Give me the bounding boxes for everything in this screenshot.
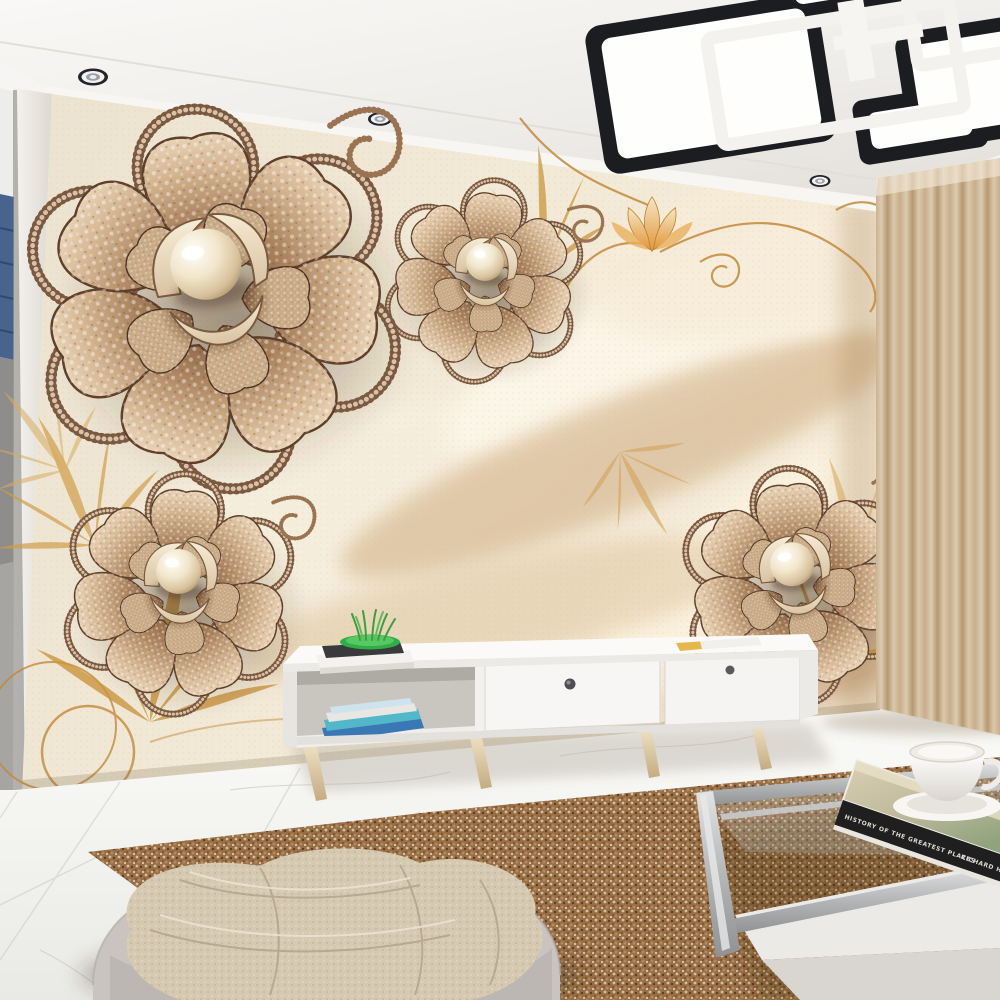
stand-left-panel [283, 671, 297, 748]
drawer-1-knob [565, 679, 576, 690]
drawer-2 [665, 654, 800, 725]
far-wall-lower [0, 562, 15, 792]
curtain-shade [876, 158, 1000, 735]
interior-scene: HISTORY OF THE GREATEST PLACES RICHARD H… [0, 0, 1000, 1000]
far-wall-mid [0, 357, 14, 565]
far-wall-upper [0, 88, 14, 197]
drawer-1 [485, 659, 660, 731]
curtain [876, 158, 1000, 735]
stand-divider [475, 666, 485, 737]
blanket-knit-texture [127, 848, 543, 1000]
drawer-1-knob-highlight [567, 681, 571, 685]
spotlight-1 [78, 69, 108, 86]
cup-interior [918, 745, 976, 759]
living-room-render: HISTORY OF THE GREATEST PLACES RICHARD H… [0, 0, 1000, 1000]
stand-right-panel [800, 651, 818, 720]
knit-blanket [127, 848, 543, 1000]
drawer-2-knob [726, 666, 735, 675]
green-dish-inner [346, 635, 394, 646]
blue-roman-shade [0, 194, 14, 360]
spotlight-4 [810, 175, 831, 187]
